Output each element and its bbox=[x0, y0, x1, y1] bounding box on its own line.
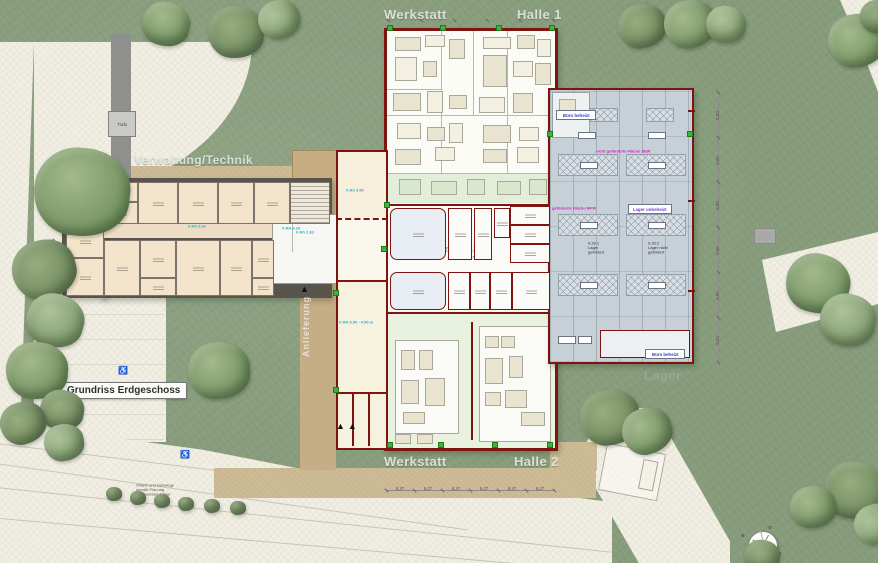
lager-unbeheizt-box: Lager unbeheizt bbox=[628, 204, 672, 214]
compass-e: O bbox=[768, 525, 771, 530]
zone-halle-1: Halle 1 bbox=[517, 7, 562, 22]
machine-block bbox=[395, 57, 417, 81]
room-label-text bbox=[526, 289, 537, 294]
buero-beheizt-box-2: Büro beheizt bbox=[645, 349, 685, 359]
room-label-text bbox=[478, 232, 489, 237]
machine-block bbox=[449, 123, 463, 143]
door-marker bbox=[333, 387, 339, 393]
hall-wall-tick bbox=[688, 110, 695, 112]
bush bbox=[106, 487, 122, 501]
room-label-text bbox=[153, 285, 164, 290]
admin-room bbox=[104, 240, 140, 296]
machine-block bbox=[517, 35, 535, 49]
dimension-tick bbox=[452, 18, 456, 22]
annex-partition-2 bbox=[368, 392, 370, 446]
door-marker bbox=[496, 25, 502, 31]
machine-block bbox=[497, 181, 521, 195]
machine-block bbox=[427, 127, 445, 141]
lager-nicht-gefoerdert-note: 0.28.2 Lager nicht gefördert bbox=[648, 241, 692, 268]
zone-halle-2: Halle 2 bbox=[514, 454, 559, 469]
bhkw-room bbox=[336, 150, 388, 220]
room-label-text bbox=[497, 221, 508, 226]
admin-stair-room bbox=[290, 182, 330, 224]
zone-werkstatt-bottom: Werkstatt bbox=[384, 454, 447, 469]
machine-block bbox=[479, 97, 505, 113]
dimension-text: 6,27 bbox=[532, 486, 547, 491]
height-admin-corridor: h Rh 2.63 bbox=[188, 224, 224, 233]
machine-block bbox=[395, 37, 421, 51]
lager-gefoerdert-note: 0.28.1 Lager gefördert bbox=[588, 241, 628, 268]
silo-triangles-icon: ▲▲ bbox=[336, 421, 360, 431]
tree bbox=[789, 484, 838, 529]
storage-hall-building bbox=[548, 88, 694, 364]
machine-block bbox=[395, 149, 421, 165]
dimension-text: 6,27 bbox=[504, 486, 519, 491]
dimension-tick bbox=[716, 270, 720, 274]
trafo-label: Trafo bbox=[117, 122, 127, 127]
machine-block bbox=[449, 39, 465, 59]
rack-label-chip bbox=[580, 162, 598, 169]
machine-block bbox=[467, 179, 485, 195]
dimension-value: 5,00 bbox=[713, 287, 722, 303]
zone-lager: Lager bbox=[644, 368, 681, 383]
compass-n: N bbox=[741, 533, 744, 538]
bush bbox=[230, 501, 246, 515]
rack-label-chip bbox=[580, 222, 598, 229]
door-marker bbox=[440, 25, 446, 31]
bush bbox=[154, 494, 170, 508]
sozial-room bbox=[448, 208, 472, 260]
dimension-tick bbox=[716, 180, 720, 184]
dimension-tick bbox=[716, 315, 720, 319]
halle1-partition bbox=[507, 31, 508, 173]
halle1-partition bbox=[473, 31, 474, 115]
halle1-partition bbox=[387, 173, 555, 174]
rack-label-chip bbox=[648, 222, 666, 229]
room-label-text bbox=[193, 266, 204, 271]
zone-anlieferung: Anlieferung bbox=[301, 296, 311, 357]
room-label-text bbox=[454, 289, 465, 294]
bush bbox=[204, 499, 220, 513]
machine-block bbox=[483, 37, 511, 49]
table-block bbox=[419, 350, 433, 370]
dimension-text: 6,27 bbox=[448, 486, 463, 491]
door-marker bbox=[492, 442, 498, 448]
dimension-tick bbox=[716, 135, 720, 139]
dimension-text: 6,27 bbox=[420, 486, 435, 491]
room-label-text bbox=[258, 257, 269, 262]
door-marker bbox=[438, 442, 444, 448]
table-block bbox=[401, 350, 415, 370]
dimension-chain-bottom: 6,276,276,276,276,276,27 bbox=[386, 484, 554, 496]
sozial-room bbox=[510, 225, 550, 244]
tree bbox=[207, 5, 265, 58]
buero-beheizt-1-label: Büro beheizt bbox=[563, 113, 590, 118]
dimension-value: 5,00 bbox=[713, 197, 722, 213]
door-marker bbox=[547, 131, 553, 137]
table-block bbox=[509, 356, 523, 378]
dimension-tick bbox=[716, 90, 720, 94]
admin-room bbox=[254, 182, 290, 224]
room-label-text bbox=[80, 275, 91, 280]
gefoerdert-label: geförderte Fläche MFW bbox=[552, 206, 622, 215]
room-label-text bbox=[496, 289, 507, 294]
door-marker bbox=[387, 442, 393, 448]
truck-icon bbox=[638, 459, 658, 491]
machine-block bbox=[483, 149, 507, 163]
dimension-text: 5,00 bbox=[715, 201, 720, 210]
machine-block bbox=[435, 147, 455, 161]
site-plan: Trafo Büro beheizt nicht geförderte Fläc… bbox=[0, 0, 878, 563]
table-block bbox=[521, 412, 545, 426]
dimension-value: 6,27 bbox=[470, 484, 498, 493]
dimension-value: 5,00 bbox=[713, 152, 722, 168]
buero-beheizt-2-label: Büro beheizt bbox=[652, 352, 679, 357]
admin-room bbox=[140, 278, 176, 296]
dimension-value: 5,00 bbox=[713, 107, 722, 123]
room-label-text bbox=[413, 289, 424, 294]
silo-room bbox=[336, 280, 388, 394]
dimension-tick bbox=[485, 18, 489, 22]
machine-block bbox=[483, 125, 511, 143]
rack-label-chip bbox=[580, 282, 598, 289]
silo-triangle-icon: ▲ bbox=[300, 284, 309, 294]
dimension-text: 5,00 bbox=[715, 111, 720, 120]
rack-label-chip bbox=[648, 162, 666, 169]
machine-block bbox=[449, 95, 467, 109]
table-block bbox=[485, 392, 501, 406]
dimension-text: 5,00 bbox=[715, 291, 720, 300]
zone-verwaltung: Verwaltung/Technik bbox=[134, 153, 253, 167]
room-label-text bbox=[153, 201, 164, 206]
sozial-room bbox=[470, 272, 490, 310]
machine-block bbox=[427, 91, 443, 113]
table-block bbox=[485, 336, 499, 348]
machine-block bbox=[423, 61, 437, 77]
door-marker bbox=[384, 202, 390, 208]
admin-room bbox=[218, 182, 254, 224]
table-block bbox=[485, 358, 503, 384]
tree bbox=[615, 0, 670, 52]
machine-block bbox=[535, 63, 551, 85]
halle1-partition bbox=[387, 115, 555, 116]
admin-room bbox=[138, 182, 178, 224]
machine-block bbox=[519, 127, 539, 141]
machine-block bbox=[537, 39, 551, 57]
storage-rack bbox=[558, 214, 618, 236]
dimension-value: 6,27 bbox=[526, 484, 554, 493]
room-label-text bbox=[258, 285, 269, 290]
table-block bbox=[395, 434, 411, 444]
hall-chip bbox=[578, 336, 592, 344]
dimension-value: 6,27 bbox=[498, 484, 526, 493]
dimension-value: 6,27 bbox=[386, 484, 414, 493]
admin-room bbox=[220, 240, 252, 296]
sozial-room bbox=[448, 272, 470, 310]
table-block bbox=[501, 336, 515, 348]
dimension-text: 5,00 bbox=[715, 246, 720, 255]
room-label-text bbox=[525, 232, 536, 237]
dimension-tick bbox=[716, 225, 720, 229]
sozial-room bbox=[390, 272, 446, 310]
sozial-room bbox=[494, 208, 510, 238]
machine-block bbox=[517, 147, 539, 163]
height-foyer: h RH 4.26 bbox=[282, 226, 318, 235]
storage-rack bbox=[646, 108, 674, 122]
admin-room bbox=[252, 278, 274, 296]
machine-block bbox=[483, 55, 507, 87]
height-silo: h RH 3.50 - 4.50 m bbox=[339, 320, 407, 329]
sozial-room bbox=[510, 244, 550, 263]
machine-block bbox=[431, 181, 457, 195]
door-marker bbox=[549, 25, 555, 31]
table-block bbox=[505, 390, 527, 408]
halle2-partition bbox=[471, 322, 473, 440]
room-label-text bbox=[267, 201, 278, 206]
nicht-gefoerdert-label: nicht geförderte Fläche SEW bbox=[596, 149, 686, 158]
room-label-text bbox=[231, 266, 242, 271]
door-marker bbox=[333, 290, 339, 296]
machine-block bbox=[513, 61, 533, 77]
table-block bbox=[401, 380, 419, 404]
storage-rack bbox=[626, 214, 686, 236]
dimension-text: 5,00 bbox=[715, 156, 720, 165]
hall-wall-tick bbox=[688, 290, 695, 292]
machine-block bbox=[397, 123, 421, 139]
road-line bbox=[0, 517, 649, 563]
dimension-value: 6,27 bbox=[414, 484, 442, 493]
room-label-text bbox=[525, 213, 536, 218]
height-bhkw: h Rh 3.50 bbox=[346, 188, 382, 197]
dimension-value: 5,00 bbox=[713, 242, 722, 258]
bush bbox=[178, 497, 194, 511]
admin-room bbox=[140, 240, 176, 278]
trafo-box: Trafo bbox=[108, 111, 136, 137]
room-label-text bbox=[80, 239, 91, 244]
utility-pad bbox=[754, 228, 776, 244]
machine-block bbox=[513, 93, 533, 113]
machine-block bbox=[393, 93, 421, 111]
tree bbox=[187, 341, 251, 400]
admin-room bbox=[178, 182, 218, 224]
room-label-text bbox=[475, 289, 486, 294]
storage-rack bbox=[626, 274, 686, 296]
machine-block bbox=[399, 179, 421, 195]
hall-wall-tick bbox=[688, 200, 695, 202]
zone-werkstatt-top: Werkstatt bbox=[384, 7, 447, 22]
dimension-chain-right: 5,005,005,005,005,005,00 bbox=[712, 92, 724, 362]
sozial-room bbox=[474, 208, 492, 260]
rack-label-chip bbox=[648, 282, 666, 289]
dimension-tick bbox=[716, 360, 720, 364]
halle-2-building bbox=[384, 312, 558, 451]
table-block bbox=[425, 378, 445, 406]
room-label-text bbox=[117, 266, 128, 271]
sozial-room bbox=[510, 206, 550, 225]
door-marker bbox=[387, 25, 393, 31]
admin-room bbox=[176, 240, 220, 296]
dimension-text: 5,00 bbox=[715, 336, 720, 345]
accessible-parking-icon-2: ♿ bbox=[180, 450, 190, 459]
room-label-text bbox=[455, 232, 466, 237]
hall-chip bbox=[558, 336, 576, 344]
table-block bbox=[403, 412, 425, 424]
sozial-room bbox=[490, 272, 512, 310]
room-label-text bbox=[413, 232, 424, 237]
door-marker bbox=[547, 442, 553, 448]
door-marker bbox=[687, 131, 693, 137]
dimension-text: 6,27 bbox=[476, 486, 491, 491]
machine-block bbox=[529, 179, 547, 195]
halle1-partition bbox=[387, 89, 441, 90]
room-label-text bbox=[193, 201, 204, 206]
storage-rack bbox=[558, 274, 618, 296]
room-label-text bbox=[525, 251, 536, 256]
buero-beheizt-box-1: Büro beheizt bbox=[556, 110, 596, 120]
room-label-text bbox=[231, 201, 242, 206]
room-label-text bbox=[153, 257, 164, 262]
hall-chip bbox=[578, 132, 596, 139]
bush bbox=[130, 491, 146, 505]
dimension-value: 5,00 bbox=[713, 332, 722, 348]
halle-1-building bbox=[384, 28, 558, 210]
dimension-value: 6,27 bbox=[442, 484, 470, 493]
admin-room bbox=[252, 240, 274, 278]
sozial-room bbox=[512, 272, 550, 310]
machine-block bbox=[425, 35, 445, 47]
dimension-text: 6,27 bbox=[392, 486, 407, 491]
table-block bbox=[417, 434, 433, 444]
foyer-block bbox=[272, 214, 346, 284]
hall-chip bbox=[648, 132, 666, 139]
sozial-room bbox=[390, 208, 446, 260]
accessible-parking-icon: ♿ bbox=[118, 366, 128, 375]
door-marker bbox=[381, 246, 387, 252]
annex-partition-1 bbox=[352, 392, 354, 446]
